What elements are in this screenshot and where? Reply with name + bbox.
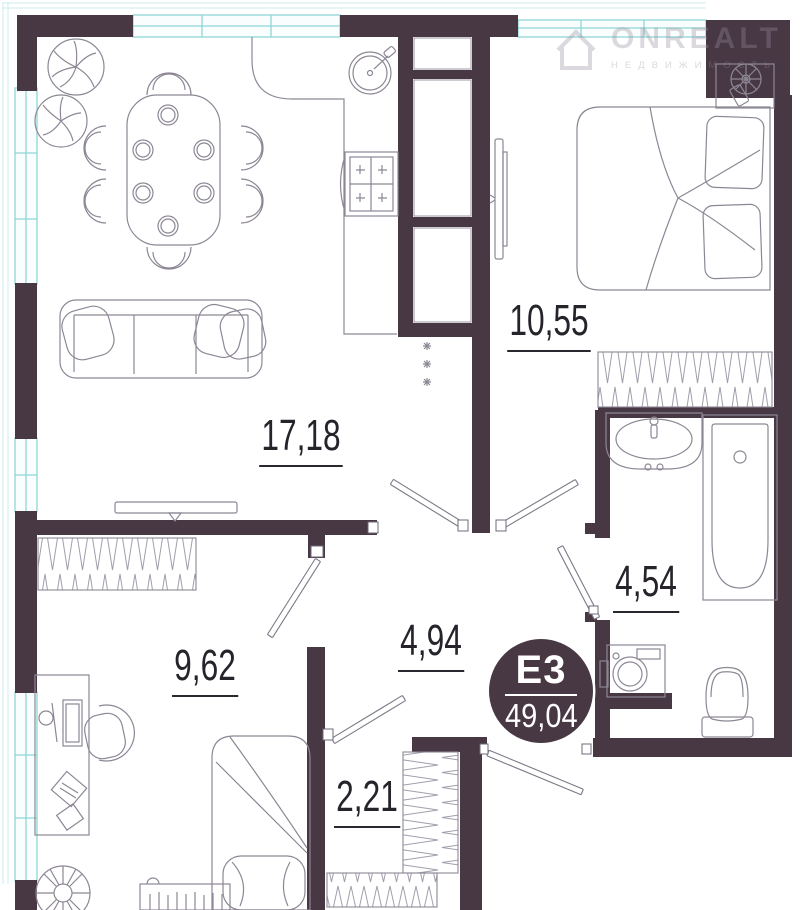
- plant-icon: [36, 866, 90, 910]
- sofa-icon: [58, 300, 268, 378]
- kitchen-sink-icon: [349, 46, 396, 94]
- tv-icon: [490, 139, 507, 259]
- plant-icon: [35, 39, 104, 147]
- riser-marks-icon: [423, 342, 431, 386]
- double-bed-icon: [577, 107, 770, 290]
- unit-badge: E3 49,04: [489, 639, 593, 743]
- bathtub-icon: [703, 415, 777, 600]
- unit-badge-divider: [505, 694, 577, 696]
- wardrobe-hatch-icon: [598, 352, 772, 407]
- bath-sink-icon: [606, 413, 702, 470]
- room-label-room: 9,62: [172, 644, 238, 697]
- unit-badge-total-area: 49,04: [505, 699, 578, 732]
- dining-chair-icon: [84, 73, 263, 269]
- room-label-wardrobe: 2,21: [334, 775, 400, 828]
- floor-plan-drawing: [0, 0, 811, 910]
- vent-shaft: [414, 38, 471, 322]
- office-chair-icon: [82, 705, 135, 761]
- room-label-bathroom: 4,54: [613, 560, 679, 613]
- room-label-living-kitchen: 17,18: [259, 414, 343, 467]
- dining-table-icon: [127, 95, 220, 245]
- room-label-bedroom: 10,55: [507, 299, 591, 352]
- kitchen-counter-icon: [252, 37, 397, 334]
- room-label-hallway: 4,94: [398, 619, 464, 672]
- desk-icon: [35, 675, 89, 835]
- toilet-icon: [702, 668, 753, 738]
- stove-icon: [341, 152, 399, 216]
- tv-icon: [115, 502, 237, 521]
- bookshelf-icon: [140, 878, 230, 910]
- floor-plan: ONREALT НЕДВИЖИМОСТЬ 17,18 10,55 4,54 9,…: [0, 0, 811, 910]
- wardrobe-hatch-icon: [38, 538, 196, 590]
- unit-badge-number: E3: [516, 650, 567, 690]
